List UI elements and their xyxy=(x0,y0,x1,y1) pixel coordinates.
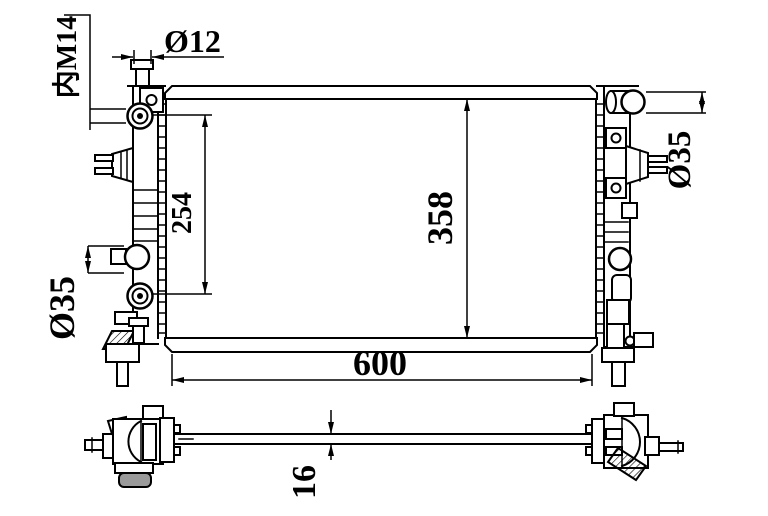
left-pin-bracket xyxy=(95,148,133,182)
boss-square-upper xyxy=(606,128,626,148)
dim-label-inlet: Ø35 xyxy=(662,131,698,190)
lower-boss xyxy=(128,284,153,309)
dim-label-core-width: 600 xyxy=(353,343,407,383)
mount-foot xyxy=(119,473,151,487)
right-crimp-strip xyxy=(596,86,604,347)
core-profile xyxy=(175,434,593,444)
right-bottom-bracket xyxy=(602,300,653,386)
dim-label-thread: 内M14 xyxy=(51,16,83,98)
side-tab xyxy=(622,203,637,218)
dim-inlet-diameter: Ø35 xyxy=(646,92,706,189)
radiator-drawing: 内M14 Ø12 254 358 600 xyxy=(0,0,768,516)
right-tank xyxy=(597,86,667,386)
filler-neck xyxy=(136,69,149,86)
dim-label-filler: Ø12 xyxy=(164,23,221,59)
drain-plug xyxy=(106,344,139,386)
round-boss xyxy=(609,248,631,270)
bottom-left-fitting xyxy=(85,406,180,487)
bottom-view xyxy=(85,403,683,487)
bracket-hole xyxy=(147,95,157,105)
dim-label-thickness: 16 xyxy=(286,465,323,499)
pill-feature xyxy=(612,275,631,303)
dim-label-outlet: Ø35 xyxy=(42,276,82,340)
technical-drawing-page: 内M14 Ø12 254 358 600 xyxy=(0,0,768,516)
inlet-pipe xyxy=(606,91,645,114)
right-pin-bracket xyxy=(626,146,667,184)
dim-label-port-spacing: 254 xyxy=(167,192,198,234)
boss-square-lower xyxy=(606,178,626,198)
dim-thread: 内M14 xyxy=(51,15,126,130)
top-header xyxy=(165,86,597,99)
dim-port-spacing: 254 xyxy=(152,115,212,294)
m14-port xyxy=(128,104,153,129)
dim-filler-diameter: Ø12 xyxy=(112,23,224,64)
outlet-port xyxy=(111,245,149,269)
bottom-right-fitting xyxy=(586,403,683,480)
dim-core-thickness: 16 xyxy=(286,410,331,499)
dim-label-core-height: 358 xyxy=(420,191,460,245)
dim-core-height: 358 xyxy=(420,99,467,338)
